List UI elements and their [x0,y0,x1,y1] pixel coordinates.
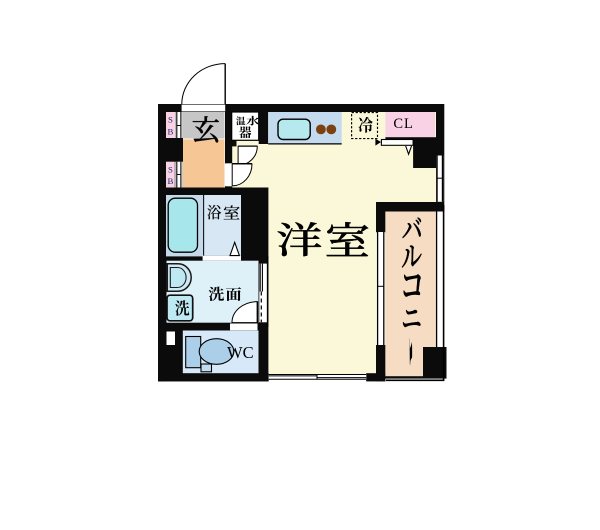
svg-text:CL: CL [393,116,414,132]
svg-text:WC: WC [227,343,254,362]
svg-text:S: S [168,114,173,124]
svg-text:B: B [167,126,173,136]
svg-text:B: B [167,176,173,186]
svg-text:S: S [168,164,173,174]
